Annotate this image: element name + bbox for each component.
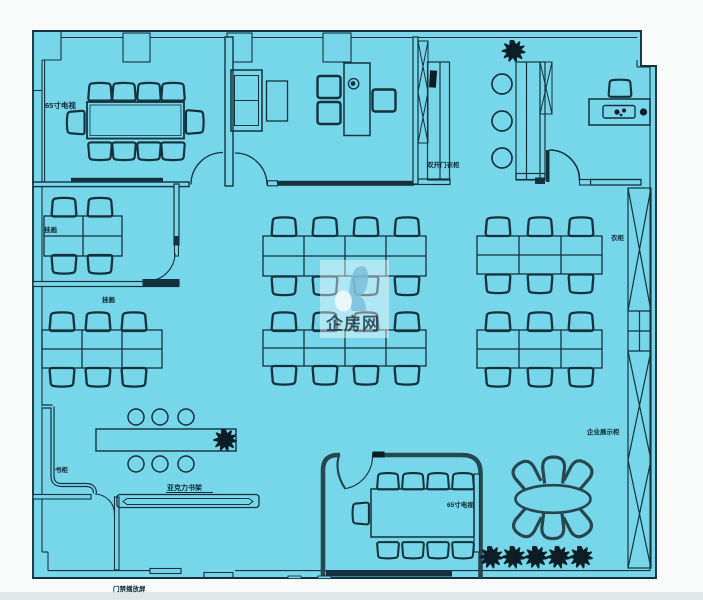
svg-text:书柜: 书柜: [55, 465, 69, 474]
svg-text:65寸电视: 65寸电视: [45, 100, 76, 110]
svg-text:挂画: 挂画: [102, 295, 116, 304]
svg-text:门禁播放屏: 门禁播放屏: [113, 584, 146, 593]
svg-text:挂画: 挂画: [44, 225, 58, 234]
svg-text:企业展示柜: 企业展示柜: [586, 427, 620, 436]
svg-text:65寸电视: 65寸电视: [447, 500, 474, 509]
svg-text:企房网: 企房网: [325, 314, 380, 334]
svg-text:双开门衣柜: 双开门衣柜: [427, 160, 460, 169]
svg-text:亚克力书架: 亚克力书架: [167, 483, 202, 492]
svg-text:衣柜: 衣柜: [611, 233, 625, 242]
